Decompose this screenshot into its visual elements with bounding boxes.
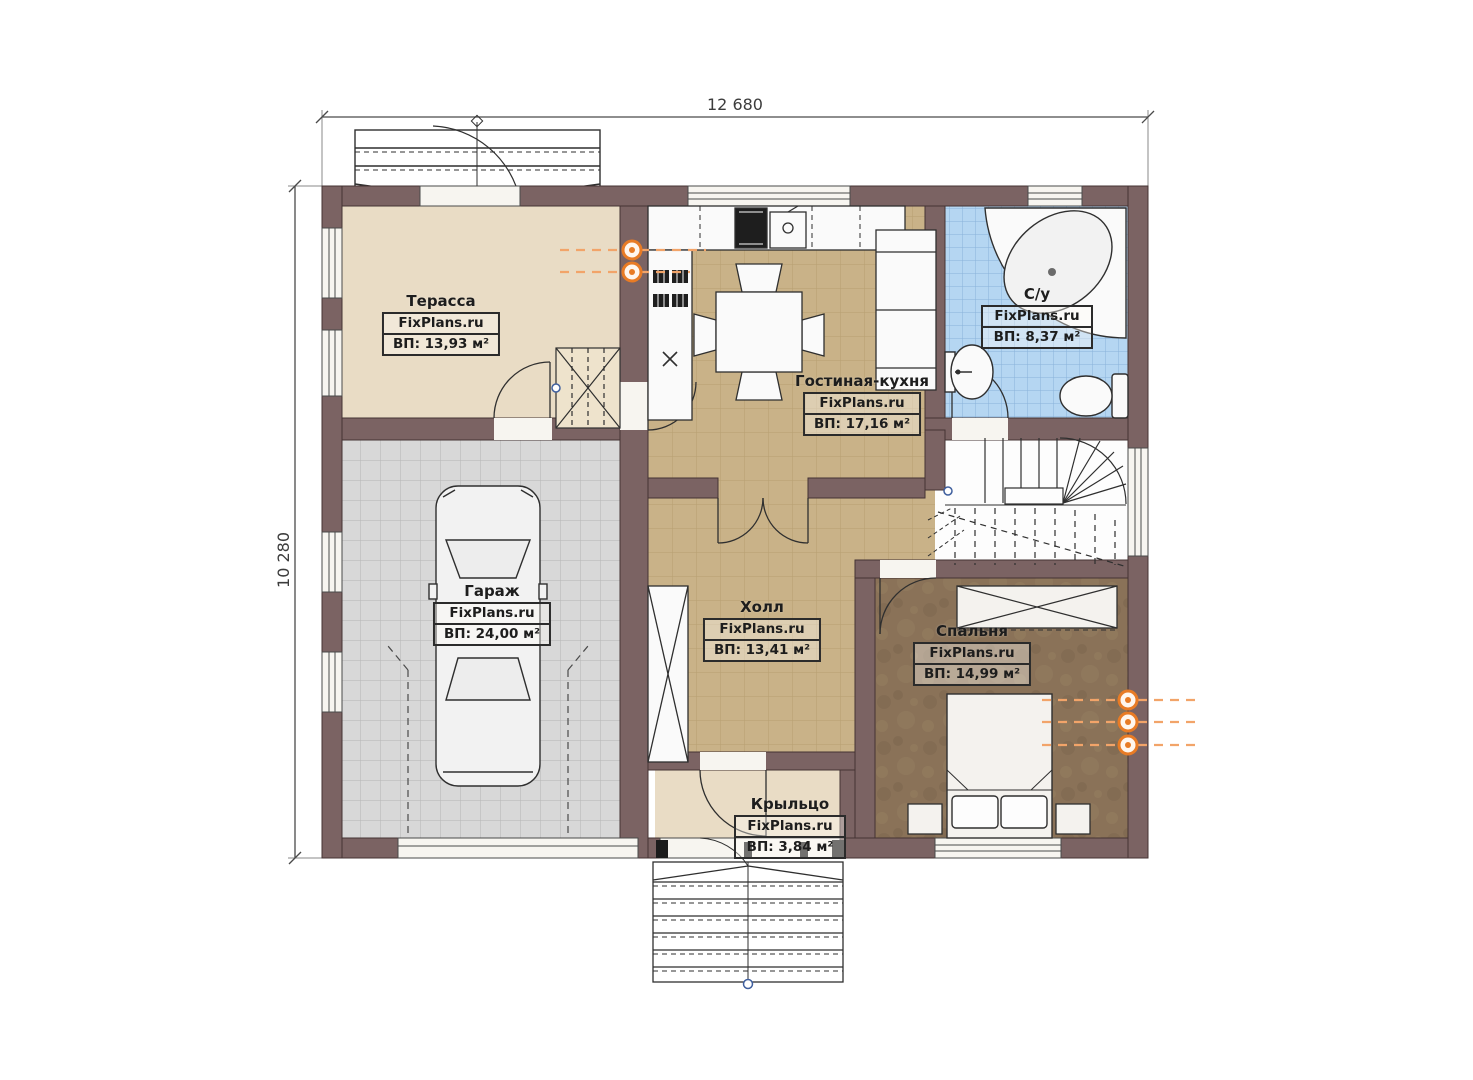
room-info-box: FixPlans.ru ВП: 3,84 м² (734, 815, 846, 859)
room-area: ВП: 3,84 м² (736, 838, 844, 857)
room-name: Крыльцо (734, 795, 846, 813)
room-info-box: FixPlans.ru ВП: 8,37 м² (981, 305, 1093, 349)
room-area: ВП: 13,93 м² (384, 335, 498, 354)
dimension-left-label: 10 280 (274, 532, 293, 588)
room-label-hall: Холл FixPlans.ru ВП: 13,41 м² (703, 598, 821, 662)
room-name: Спальня (913, 622, 1031, 640)
sofa (876, 230, 936, 390)
room-name: Гараж (433, 582, 551, 600)
room-info-box: FixPlans.ru ВП: 13,93 м² (382, 312, 500, 356)
room-label-porch: Крыльцо FixPlans.ru ВП: 3,84 м² (734, 795, 846, 859)
utility-markers-bedroom (1042, 691, 1196, 754)
room-name: Холл (703, 598, 821, 616)
terrace-window-1 (322, 228, 342, 298)
room-brand: FixPlans.ru (915, 644, 1029, 665)
room-brand: FixPlans.ru (435, 604, 549, 625)
room-name: Гостиная-кухня (795, 372, 929, 390)
room-name: Терасса (382, 292, 500, 310)
room-label-bedroom: Спальня FixPlans.ru ВП: 14,99 м² (913, 622, 1031, 686)
exterior-stairs-porch (653, 838, 843, 989)
room-label-kitchen-living: Гостиная-кухня FixPlans.ru ВП: 17,16 м² (795, 372, 929, 436)
kitchen-window (688, 186, 850, 206)
room-brand: FixPlans.ru (805, 394, 919, 415)
bathroom-window (1028, 186, 1082, 206)
room-name: С/у (981, 285, 1093, 303)
room-brand: FixPlans.ru (384, 314, 498, 335)
terrace-top-opening (420, 186, 520, 206)
garage-door-opening (398, 838, 638, 858)
toilet (1060, 374, 1128, 418)
room-area: ВП: 17,16 м² (805, 415, 919, 434)
room-label-bathroom: С/у FixPlans.ru ВП: 8,37 м² (981, 285, 1093, 349)
bed (947, 694, 1052, 838)
garage-window-2 (322, 652, 342, 712)
room-info-box: FixPlans.ru ВП: 24,00 м² (433, 602, 551, 646)
room-area: ВП: 14,99 м² (915, 665, 1029, 684)
room-brand: FixPlans.ru (983, 307, 1091, 328)
room-area: ВП: 13,41 м² (705, 641, 819, 660)
dimension-top-label: 12 680 (707, 95, 763, 114)
room-brand: FixPlans.ru (705, 620, 819, 641)
room-info-box: FixPlans.ru ВП: 14,99 м² (913, 642, 1031, 686)
floor-plan-canvas: 12 680 10 280 (0, 0, 1473, 1080)
hall-cabinet (648, 586, 688, 762)
room-label-garage: Гараж FixPlans.ru ВП: 24,00 м² (433, 582, 551, 646)
bedroom-window (935, 838, 1061, 858)
room-area: ВП: 8,37 м² (983, 328, 1091, 347)
room-brand: FixPlans.ru (736, 817, 844, 838)
room-label-terrace: Терасса FixPlans.ru ВП: 13,93 м² (382, 292, 500, 356)
room-info-box: FixPlans.ru ВП: 13,41 м² (703, 618, 821, 662)
garage-window-1 (322, 532, 342, 592)
terrace-window-2 (322, 330, 342, 396)
dimension-left: 10 280 (274, 180, 322, 864)
cooktop (735, 208, 767, 248)
floor-plan-drawing: 12 680 10 280 (0, 0, 1473, 1080)
room-info-box: FixPlans.ru ВП: 17,16 м² (803, 392, 921, 436)
terrace-stair (552, 348, 620, 428)
room-area: ВП: 24,00 м² (435, 625, 549, 644)
stairs-window (1128, 448, 1148, 556)
kitchen-sink (770, 206, 806, 248)
bath-sink (945, 345, 993, 399)
